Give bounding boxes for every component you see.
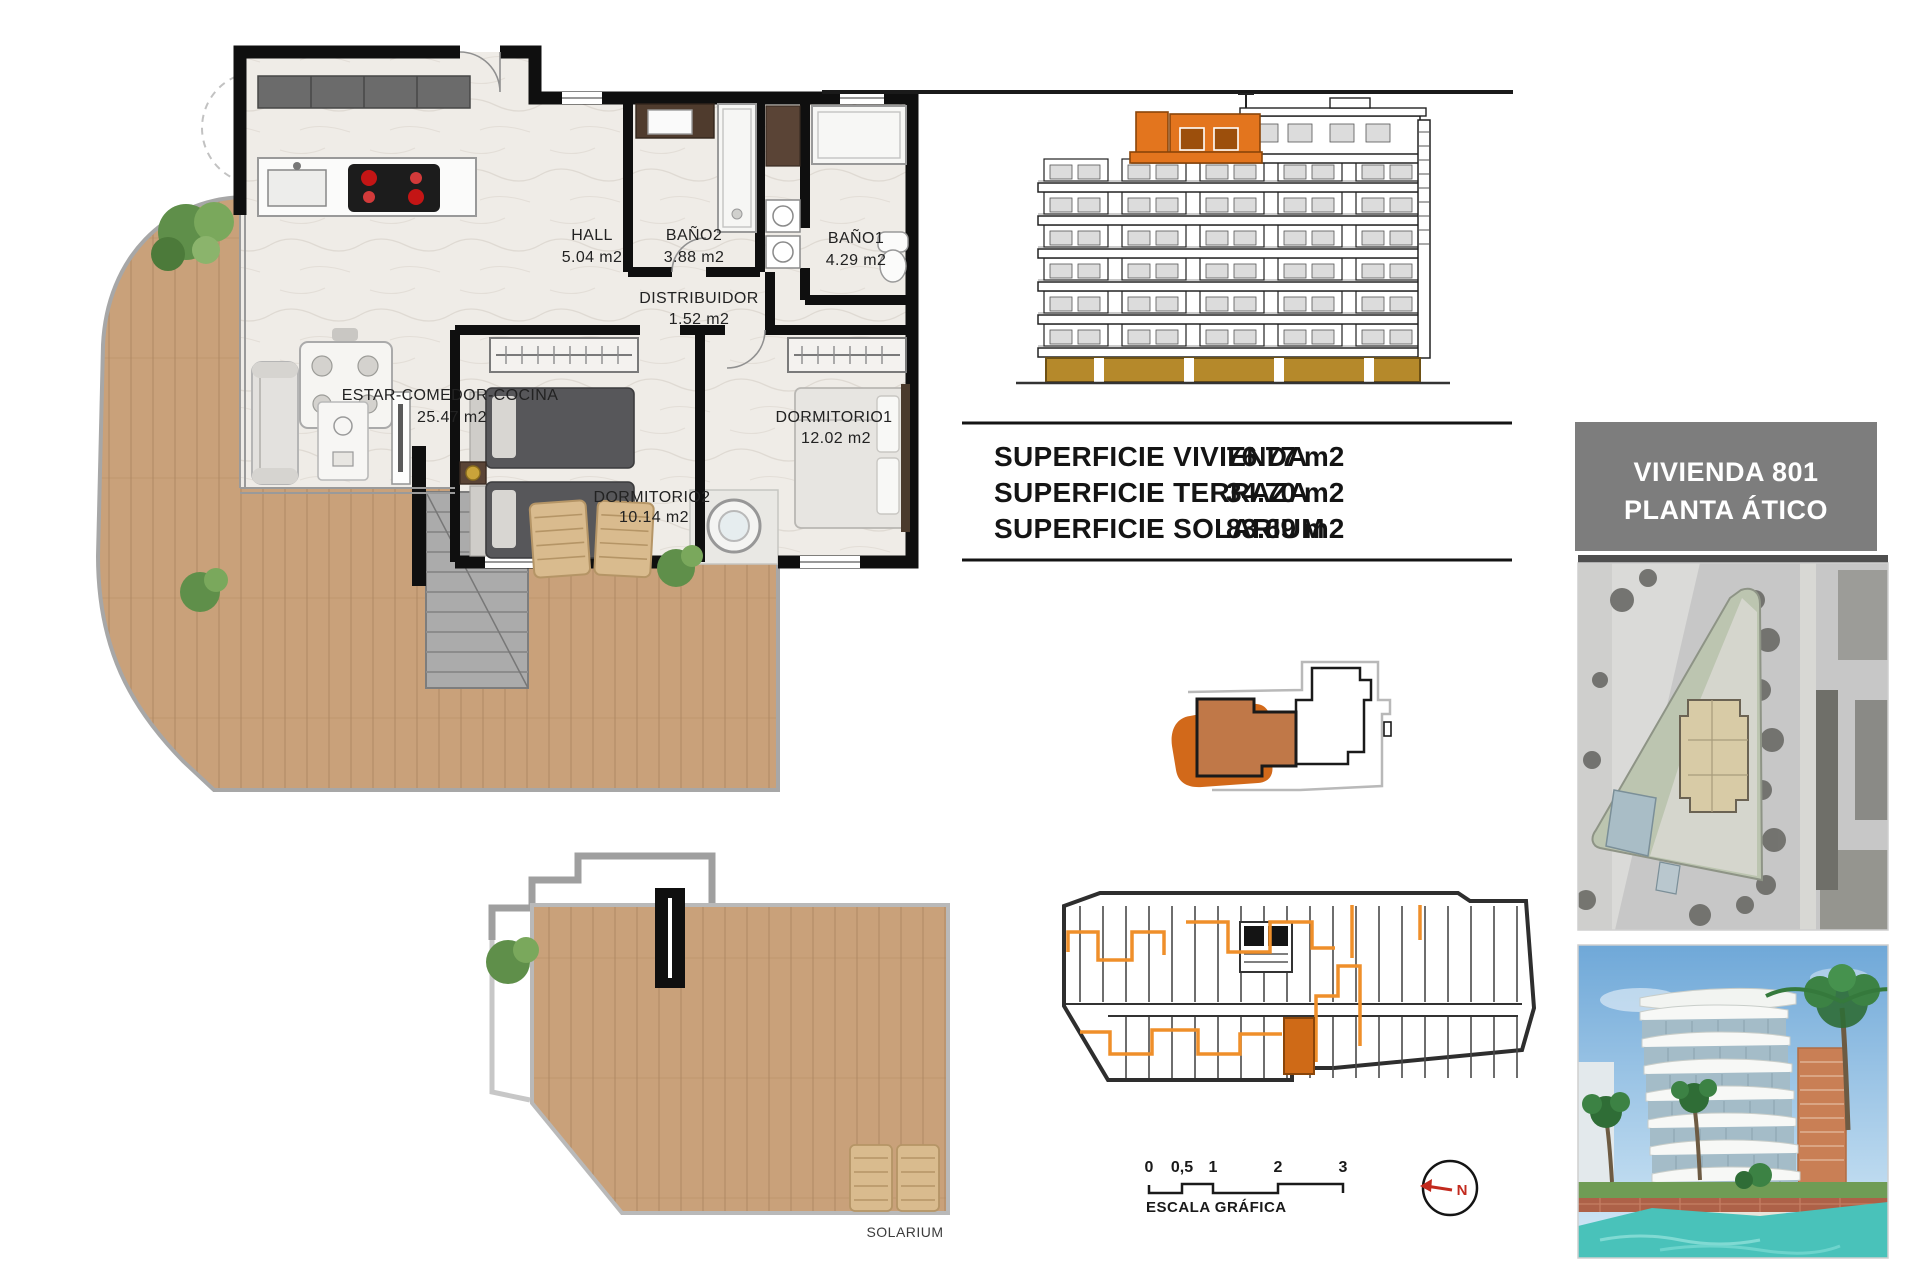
scale-tick: 1 (1209, 1159, 1218, 1176)
aerial-photo (1576, 555, 1888, 930)
coffee-table (318, 402, 368, 480)
scale-bar-line (1149, 1184, 1343, 1193)
scale-bar-label: ESCALA GRÁFICA (1146, 1199, 1287, 1216)
scale-tick: 3 (1339, 1159, 1348, 1176)
scale-bar: 0 0,5 1 2 3 ESCALA GRÁFICA (1145, 1159, 1348, 1216)
building-elevation (1016, 94, 1450, 383)
table-row-value: 34.70 m2 (1226, 477, 1344, 508)
table-row-value: 76.77 m2 (1226, 441, 1344, 472)
site-building-footprint (1680, 700, 1748, 812)
room-label-estar: ESTAR-COMEDOR-COCINA (342, 387, 559, 404)
garage-core (1240, 922, 1292, 972)
garage-unit-stall (1284, 1018, 1314, 1074)
room-area-dormitorio1: 12.02 m2 (801, 430, 871, 447)
room-label-distribuidor: DISTRIBUIDOR (639, 290, 758, 307)
room-label-bano1: BAÑO1 (828, 227, 884, 247)
elevation-side-core (1418, 120, 1430, 358)
scale-tick: 2 (1274, 1159, 1283, 1176)
key-plan (1172, 662, 1391, 790)
room-area-distribuidor: 1.52 m2 (669, 311, 730, 328)
unit-badge-line2: PLANTA ÁTICO (1624, 494, 1828, 525)
room-label-dormitorio2: DORMITORIO2 (593, 489, 710, 506)
tv-unit (392, 392, 410, 484)
table-row-value: 83.69 m2 (1226, 513, 1344, 544)
room-area-bano2: 3.88 m2 (664, 249, 725, 266)
key-plan-unit-highlight (1197, 699, 1296, 776)
highlighted-unit-orange (1130, 112, 1262, 163)
site-pool (1606, 790, 1656, 856)
room-area-bano1: 4.29 m2 (826, 252, 887, 269)
elevation-base (1016, 358, 1450, 383)
key-plan-building-outline (1296, 668, 1371, 764)
summary-table: SUPERFICIE VIVIENDA 76.77 m2 SUPERFICIE … (962, 423, 1512, 560)
aerial-top-bar (1578, 555, 1888, 563)
solarium-label: SOLARIUM (866, 1224, 943, 1240)
room-label-dormitorio1: DORMITORIO1 (775, 409, 892, 426)
room-area-dormitorio2: 10.14 m2 (619, 509, 689, 526)
scale-tick: 0 (1145, 1159, 1154, 1176)
north-label: N (1457, 1182, 1468, 1199)
unit-badge-line1: VIVIENDA 801 (1633, 457, 1818, 487)
sofa (252, 362, 298, 484)
unit-badge: VIVIENDA 801 PLANTA ÁTICO (1575, 422, 1877, 551)
room-label-hall: HALL (571, 227, 613, 244)
plan-sheet-canvas: HALL 5.04 m2 BAÑO2 3.88 m2 BAÑO1 4.29 m2… (0, 0, 1920, 1280)
plan-sheet: HALL 5.04 m2 BAÑO2 3.88 m2 BAÑO1 4.29 m2… (0, 0, 1920, 1280)
sink (268, 170, 326, 206)
render-photo (1578, 945, 1916, 1258)
scale-tick: 0,5 (1171, 1159, 1193, 1176)
room-area-hall: 5.04 m2 (562, 249, 623, 266)
room-label-bano2: BAÑO2 (666, 224, 722, 244)
solarium-plan: SOLARIUM (486, 856, 948, 1240)
north-compass: N (1420, 1161, 1477, 1215)
garage-plan (1064, 893, 1534, 1080)
hob (348, 164, 440, 212)
room-area-estar: 25.47 m2 (417, 409, 487, 426)
apartment-floor-plan: HALL 5.04 m2 BAÑO2 3.88 m2 BAÑO1 4.29 m2… (98, 52, 912, 790)
